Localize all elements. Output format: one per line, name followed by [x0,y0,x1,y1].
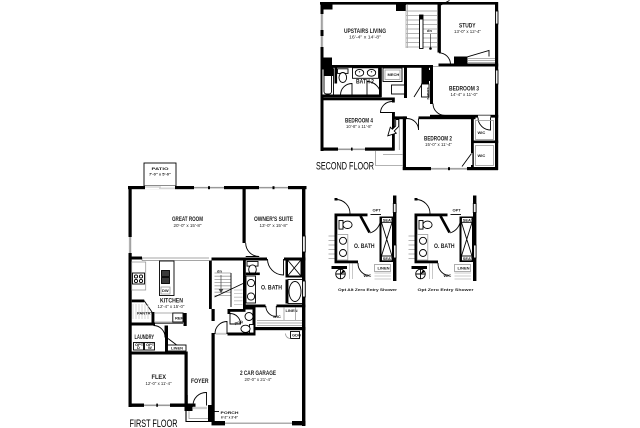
svg-text:REF: REF [175,316,184,321]
svg-text:10'-8" x 11'-8": 10'-8" x 11'-8" [346,124,372,129]
svg-text:W: W [148,345,152,350]
svg-text:LINEN: LINEN [171,345,183,350]
svg-text:FIRST FLOOR: FIRST FLOOR [130,418,178,428]
svg-text:D: D [137,345,140,350]
svg-text:LINEN: LINEN [458,266,470,271]
svg-text:SEAT: SEAT [463,217,474,222]
svg-text:13'-0" x 15'-8": 13'-0" x 15'-8" [260,223,288,228]
svg-text:O. BATH: O. BATH [261,286,282,292]
svg-text:O. BATH: O. BATH [354,244,375,250]
svg-text:6'-2" x 3'-6": 6'-2" x 3'-6" [221,415,238,420]
svg-text:SEAT: SEAT [383,256,394,261]
svg-text:DW: DW [162,288,169,293]
svg-text:WIC: WIC [478,130,486,135]
svg-text:20'-0" x 15'-8": 20'-0" x 15'-8" [174,223,202,228]
svg-text:Opt Zero Entry Shower: Opt Zero Entry Shower [418,287,475,292]
svg-text:20'-0" x 21'-4": 20'-0" x 21'-4" [245,377,272,382]
svg-text:Opt Alt Zero Entry Shower: Opt Alt Zero Entry Shower [338,287,398,292]
svg-text:FOYER: FOYER [191,379,209,385]
svg-text:13'-0" x 12'-4": 13'-0" x 12'-4" [454,29,481,34]
svg-text:7'-0" x 5'-0": 7'-0" x 5'-0" [149,172,171,177]
svg-text:dn: dn [217,269,222,274]
svg-text:LAUNDRY: LAUNDRY [135,335,155,341]
svg-text:PATIO: PATIO [152,166,169,171]
svg-text:WIC: WIC [478,153,486,158]
svg-text:MECH: MECH [388,72,400,77]
svg-text:OPT: OPT [373,208,382,213]
svg-text:dn: dn [427,28,432,33]
svg-text:SECOND FLOOR: SECOND FLOOR [316,161,374,173]
svg-text:WIC: WIC [364,273,372,278]
svg-text:SEAT: SEAT [383,217,394,222]
svg-text:12'-4" x 15'-0": 12'-4" x 15'-0" [158,304,185,309]
svg-text:LINEN: LINEN [378,266,390,271]
svg-text:12'-0" x 11'-4": 12'-0" x 11'-4" [146,381,172,386]
svg-text:OPT: OPT [453,208,462,213]
svg-text:15'-0" x 11'-4": 15'-0" x 11'-4" [425,142,452,147]
svg-text:O. BATH: O. BATH [434,244,455,250]
svg-text:14'-4" x 11'-0": 14'-4" x 11'-0" [451,92,478,97]
svg-text:16'-4" x 14'-8": 16'-4" x 14'-8" [349,35,381,40]
svg-text:GDO: GDO [292,332,301,337]
svg-text:SEAT: SEAT [463,256,474,261]
svg-text:WIC: WIC [444,273,452,278]
svg-text:PANTRY: PANTRY [137,311,153,316]
svg-text:WIC: WIC [273,314,281,319]
